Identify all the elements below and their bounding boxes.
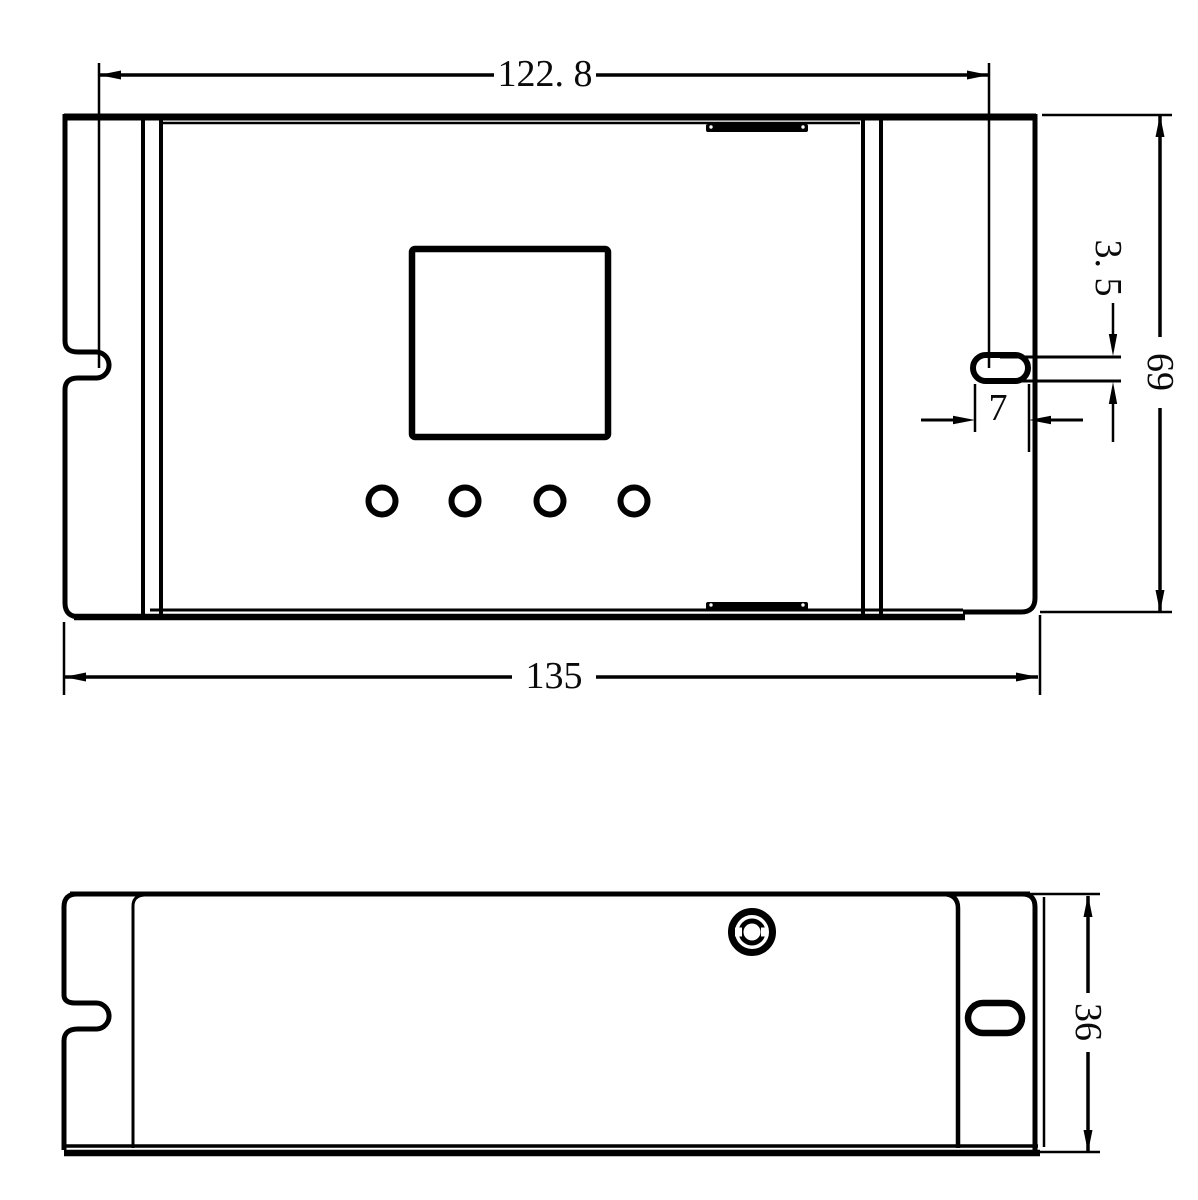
arrowhead-down: [1156, 590, 1165, 612]
dim-overall-width: 135: [64, 615, 1040, 697]
screw-slot-mark-right: [761, 928, 768, 937]
screw-slot-mark-left: [735, 928, 742, 937]
dim-overall-height: 69: [1040, 115, 1181, 612]
arrowhead-up: [1084, 895, 1093, 917]
arrowhead-right: [967, 71, 989, 80]
bottom-body-left-line: [133, 895, 144, 1148]
dim-value-slot-width: 7: [989, 387, 1008, 429]
button-1: [369, 488, 396, 515]
arrowhead-down: [1109, 334, 1117, 356]
dim-value-depth: 36: [1067, 1003, 1109, 1041]
dim-value-overall-width: 135: [526, 655, 583, 697]
dim-value-top-width: 122. 8: [498, 53, 593, 95]
arrowhead-up: [1109, 382, 1117, 404]
bottom-left-edge-with-notch: [64, 894, 150, 1150]
button-3: [537, 488, 564, 515]
bottom-body-right-line: [944, 894, 958, 1148]
technical-drawing-page: 122. 8 135 69 3. 5 7: [0, 0, 1198, 1200]
technical-drawing-canvas: 122. 8 135 69 3. 5 7: [0, 0, 1198, 1200]
dim-value-slot-height: 3. 5: [1087, 240, 1129, 297]
button-2: [452, 488, 479, 515]
right-mount-slot: [973, 355, 1028, 381]
front-view: [64, 114, 1036, 617]
dim-depth: 36: [1030, 894, 1109, 1152]
screw-inner-ring: [741, 921, 763, 943]
dim-top-width: 122. 8: [99, 53, 989, 368]
arrowhead-right: [1016, 673, 1038, 682]
arrowhead-up: [1156, 115, 1165, 137]
arrowhead-right: [953, 416, 975, 424]
display-window: [412, 249, 608, 437]
bottom-mount-slot: [968, 1003, 1022, 1033]
arrowhead-down: [1084, 1130, 1093, 1152]
arrowhead-left: [1029, 416, 1051, 424]
arrowhead-left: [99, 71, 121, 80]
button-4: [621, 488, 648, 515]
bottom-latch-tab: [706, 602, 808, 610]
top-latch-tab: [706, 124, 808, 132]
bottom-view: [64, 894, 1044, 1153]
dim-slot-height: 3. 5: [1000, 240, 1129, 443]
dim-slot-width: 7: [921, 384, 1083, 452]
button-row: [369, 488, 648, 515]
dim-value-overall-height: 69: [1139, 353, 1181, 391]
arrowhead-left: [64, 673, 86, 682]
front-left-edge-with-notch: [65, 114, 109, 617]
screw-head: [732, 912, 773, 953]
